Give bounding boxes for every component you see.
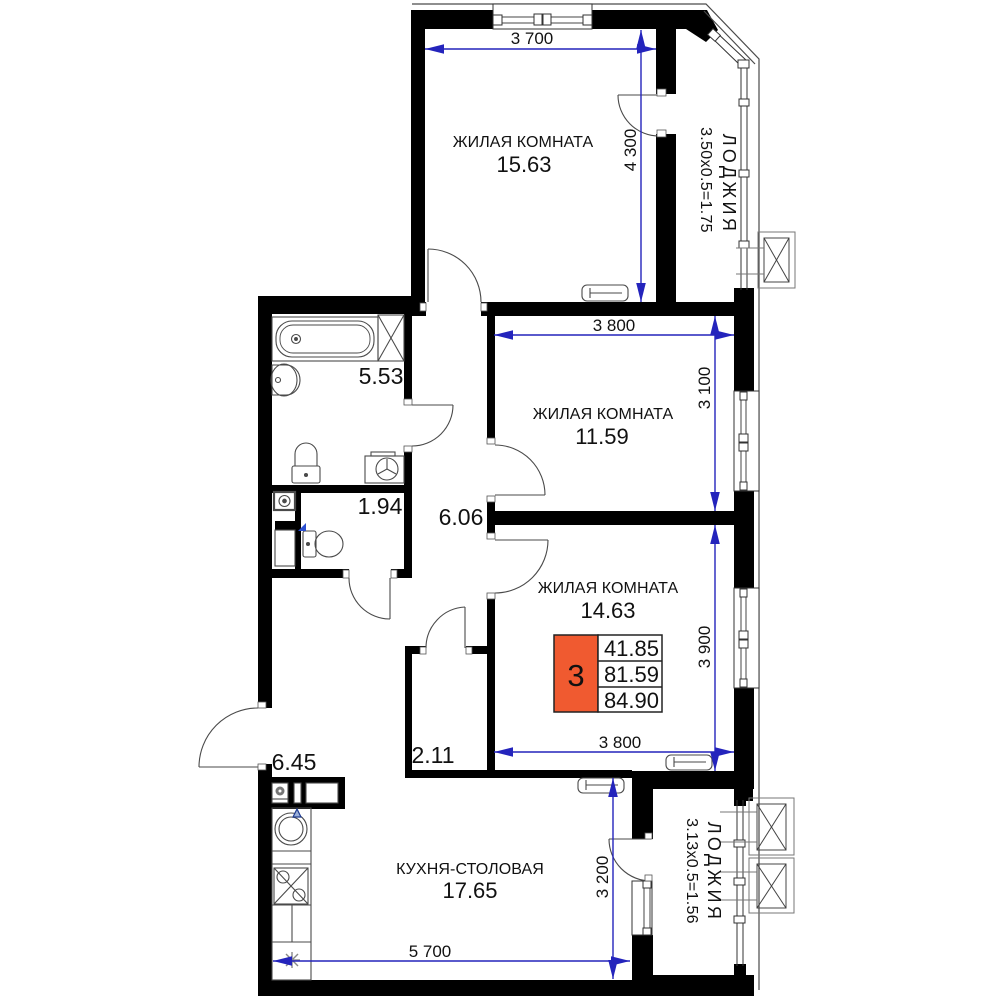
- svg-text:4 300: 4 300: [621, 129, 640, 172]
- svg-text:3 200: 3 200: [593, 856, 612, 899]
- svg-text:5 700: 5 700: [409, 942, 452, 961]
- svg-text:3 100: 3 100: [695, 367, 714, 410]
- svg-text:6.45: 6.45: [272, 749, 317, 775]
- svg-text:ЖИЛАЯ КОМНАТА: ЖИЛАЯ КОМНАТА: [538, 580, 679, 597]
- svg-text:3 700: 3 700: [511, 29, 554, 48]
- svg-text:3 900: 3 900: [695, 626, 714, 669]
- svg-text:15.63: 15.63: [496, 152, 551, 177]
- svg-text:11.59: 11.59: [575, 424, 628, 449]
- svg-text:6.06: 6.06: [439, 504, 484, 530]
- svg-text:2.11: 2.11: [411, 742, 454, 768]
- svg-text:ЖИЛАЯ КОМНАТА: ЖИЛАЯ КОМНАТА: [533, 406, 674, 423]
- svg-text:3 800: 3 800: [599, 733, 642, 752]
- svg-text:84.90: 84.90: [604, 688, 659, 713]
- svg-text:17.65: 17.65: [442, 878, 497, 903]
- svg-text:3: 3: [567, 658, 584, 693]
- svg-text:3.50х0.5=1.75: 3.50х0.5=1.75: [697, 127, 714, 233]
- svg-text:3 800: 3 800: [593, 316, 636, 335]
- svg-text:1.94: 1.94: [358, 493, 403, 519]
- svg-text:81.59: 81.59: [604, 662, 659, 687]
- svg-text:5.53: 5.53: [359, 363, 404, 389]
- svg-text:КУХНЯ-СТОЛОВАЯ: КУХНЯ-СТОЛОВАЯ: [396, 861, 544, 878]
- svg-text:14.63: 14.63: [580, 598, 635, 623]
- svg-text:ЛОДЖИЯ: ЛОДЖИЯ: [719, 134, 739, 235]
- svg-text:3.13х0.5=1.56: 3.13х0.5=1.56: [683, 818, 700, 924]
- svg-text:ЖИЛАЯ КОМНАТА: ЖИЛАЯ КОМНАТА: [453, 134, 594, 151]
- svg-text:41.85: 41.85: [604, 636, 659, 661]
- svg-text:ЛОДЖИЯ: ЛОДЖИЯ: [704, 822, 724, 923]
